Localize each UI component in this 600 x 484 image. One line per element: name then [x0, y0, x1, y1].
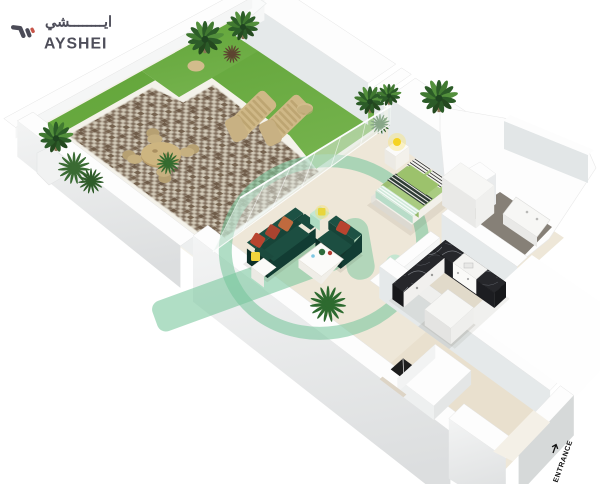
- svg-text:ايــــــــشي: ايــــــــشي: [45, 15, 112, 32]
- svg-text:AYSHEI: AYSHEI: [44, 36, 107, 53]
